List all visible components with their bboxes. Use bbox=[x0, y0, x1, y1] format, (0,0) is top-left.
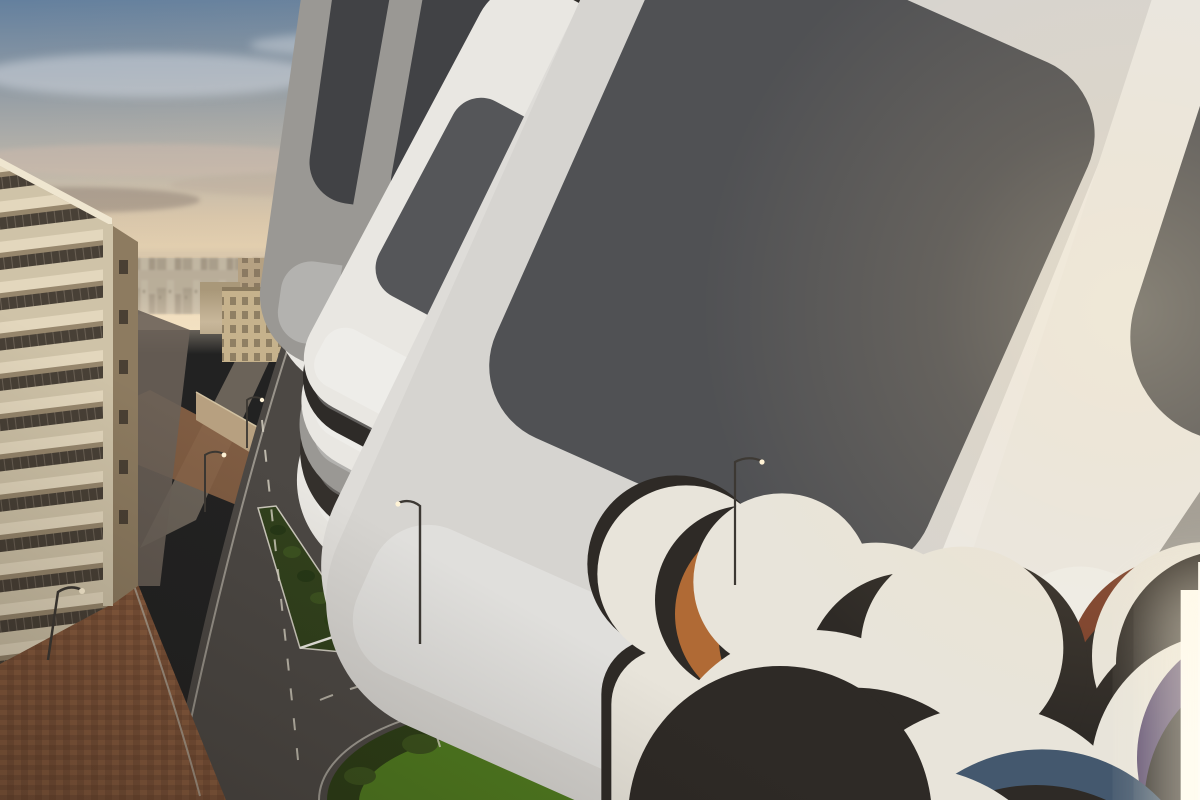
atmosphere bbox=[0, 0, 1200, 800]
rendering-canvas bbox=[0, 0, 1200, 800]
